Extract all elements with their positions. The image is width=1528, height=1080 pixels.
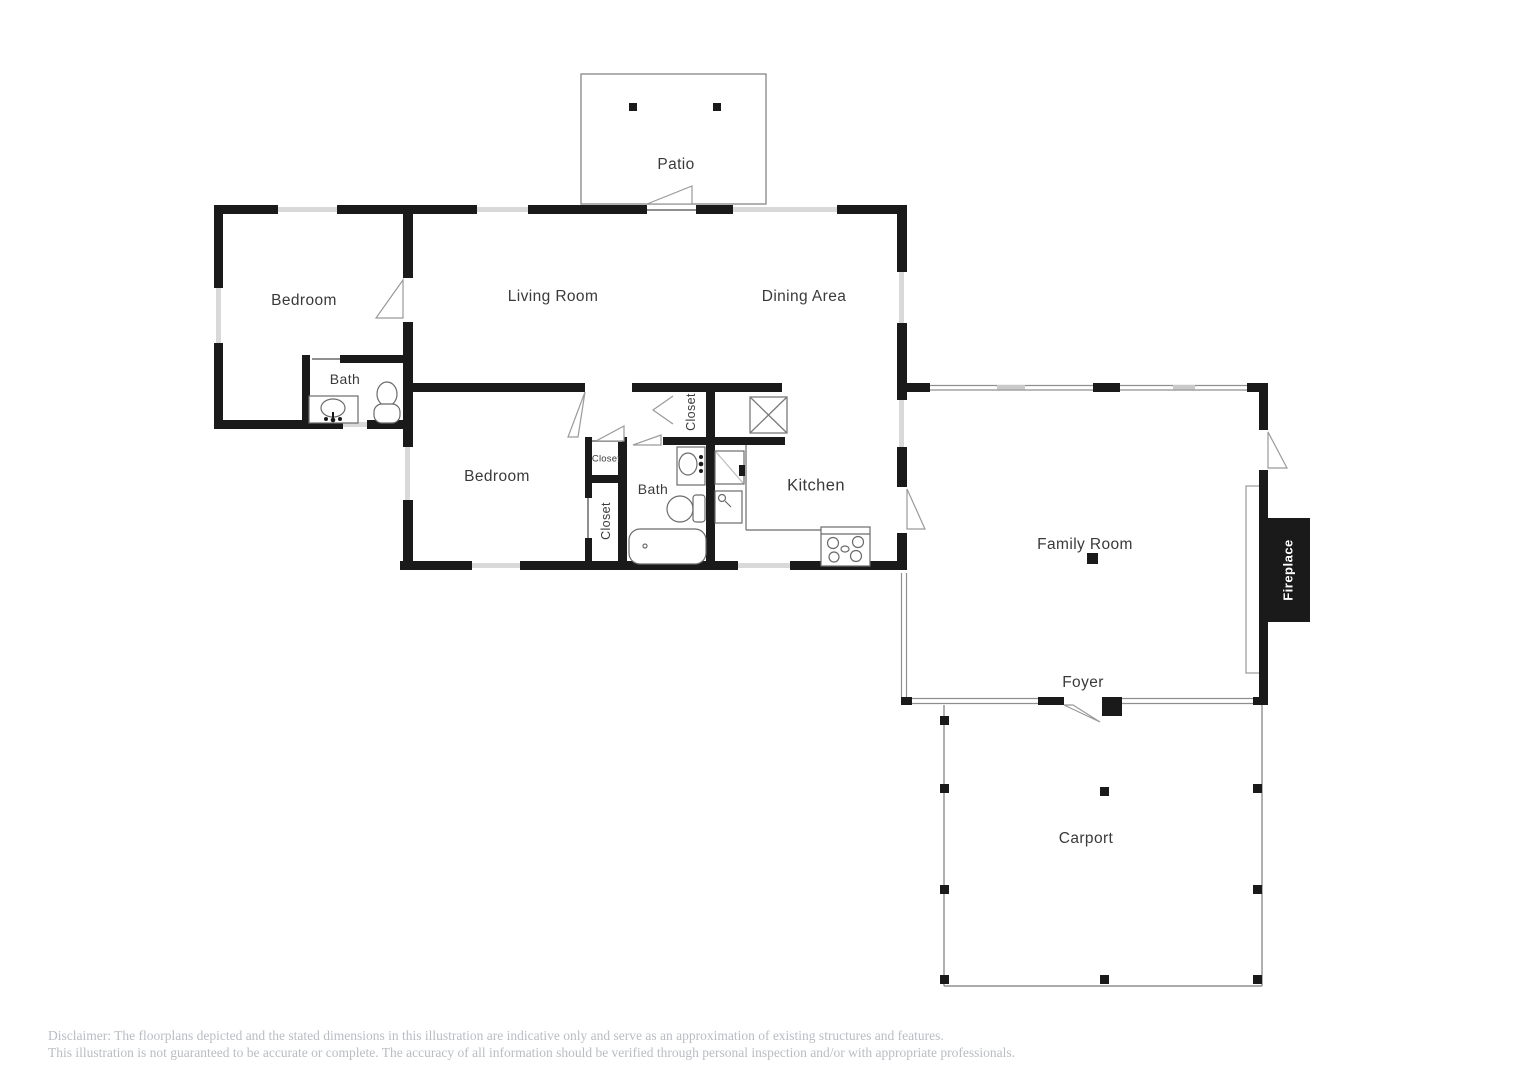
bathtub [629, 529, 706, 564]
washer-box [750, 397, 787, 433]
patio-outline [581, 74, 766, 204]
kitchen-fixtures [715, 445, 870, 566]
room-label-patio: Patio [657, 156, 694, 174]
room-label-closet-center: Closet [684, 393, 698, 431]
family-back-door-leaf [1268, 432, 1287, 468]
disclaimer-text: Disclaimer: The floorplans depicted and … [48, 1028, 1015, 1061]
kitchen-family-door-leaf [907, 489, 925, 529]
toilet-tank [693, 495, 705, 522]
room-label-bath-lower: Bath [638, 481, 668, 497]
carport-post [1100, 975, 1109, 984]
room-label-family-room: Family Room [1037, 536, 1133, 554]
carport-post [940, 716, 949, 725]
bedroom1-door-leaf [376, 280, 403, 318]
room-label-bedroom-lower: Bedroom [464, 468, 530, 486]
bath2-door-leaf [633, 435, 661, 445]
bath2-fixtures [629, 447, 706, 564]
room-label-dining-area: Dining Area [762, 288, 847, 306]
floor-plan-page: Patio Bedroom Living Room Dining Area Ba… [0, 0, 1528, 1080]
patio-door-leaf [647, 186, 692, 204]
faucet [699, 455, 704, 473]
carport-post [1253, 975, 1262, 984]
closet-door-leaf [596, 426, 624, 441]
room-label-carport: Carport [1059, 830, 1113, 848]
patio-post [713, 103, 721, 111]
patio-post [629, 103, 637, 111]
room-label-bedroom-top: Bedroom [271, 292, 337, 310]
fireplace-label: Fireplace [1281, 539, 1296, 601]
toilet-base [374, 404, 400, 423]
toilet [667, 496, 693, 522]
carport-post [940, 784, 949, 793]
bedroom2-door-leaf [568, 392, 585, 437]
room-label-closet-small: Closet [592, 454, 620, 465]
room-label-closet-tall: Closet [599, 502, 613, 540]
bathroom-sink [679, 453, 697, 475]
carport-post [940, 885, 949, 894]
room-label-bath-top: Bath [330, 371, 360, 387]
room-label-living-room: Living Room [508, 288, 599, 306]
door-leaves [376, 186, 1287, 722]
room-label-kitchen: Kitchen [787, 477, 845, 496]
room-label-foyer: Foyer [1062, 674, 1104, 692]
toilet [377, 382, 397, 406]
posts [629, 103, 1262, 984]
carport-post [1253, 784, 1262, 793]
bifold-closet-door [653, 396, 673, 424]
carport-post [940, 975, 949, 984]
foyer-door-leaf [1064, 705, 1100, 722]
sink-faucet [739, 465, 745, 476]
disclaimer-line-1: Disclaimer: The floorplans depicted and … [48, 1028, 1015, 1045]
disclaimer-line-2: This illustration is not guaranteed to b… [48, 1045, 1015, 1062]
carport-post [1253, 885, 1262, 894]
carport-post [1100, 787, 1109, 796]
bath1-fixtures [309, 382, 400, 423]
floor-plan-drawing [0, 0, 1528, 1080]
